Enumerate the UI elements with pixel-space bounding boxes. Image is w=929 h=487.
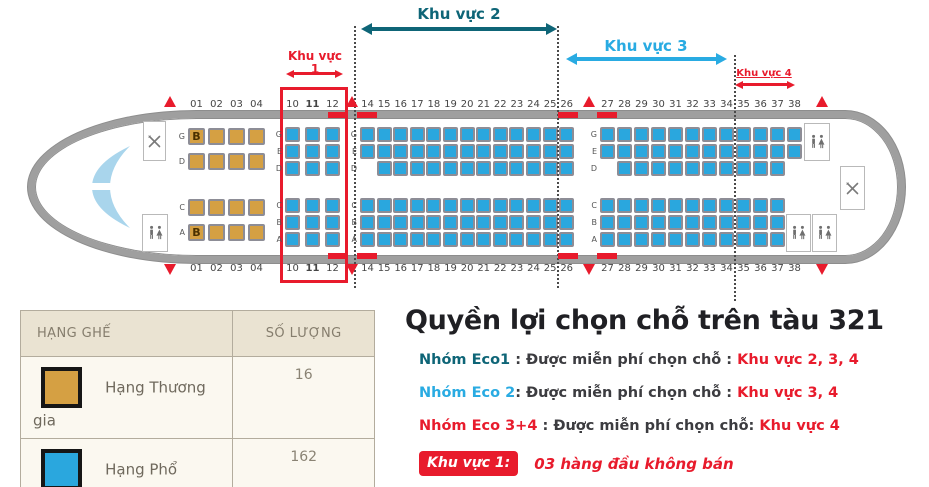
exit-door-marker — [328, 253, 348, 259]
col-number-10-top: 10 — [283, 99, 303, 110]
seat-15G[interactable] — [377, 127, 392, 142]
seat-21A[interactable] — [476, 232, 491, 247]
row-letter-econ-front-D: D — [272, 164, 282, 173]
seat-19D[interactable] — [443, 161, 458, 176]
seat-33G[interactable] — [702, 127, 717, 142]
seat-32B[interactable] — [685, 215, 700, 230]
legend-row-business: Hạng Thương gia 16 — [21, 357, 375, 439]
col-number-02-top: 02 — [207, 99, 227, 110]
seat-10G[interactable] — [285, 127, 300, 142]
galley-icon — [840, 166, 865, 210]
seat-20C[interactable] — [460, 198, 475, 213]
seat-12A[interactable] — [325, 232, 340, 247]
seat-12B[interactable] — [325, 215, 340, 230]
seat-35E[interactable] — [736, 144, 751, 159]
seat-36B[interactable] — [753, 215, 768, 230]
col-number-38-bottom: 38 — [785, 263, 805, 274]
row-letter-econ-front-A: A — [272, 235, 282, 244]
seat-22D[interactable] — [493, 161, 508, 176]
seat-15B[interactable] — [377, 215, 392, 230]
seat-29C[interactable] — [634, 198, 649, 213]
seat-30G[interactable] — [651, 127, 666, 142]
seat-29E[interactable] — [634, 144, 649, 159]
seat-19B[interactable] — [443, 215, 458, 230]
seat-37E[interactable] — [770, 144, 785, 159]
seat-18C[interactable] — [426, 198, 441, 213]
seat-10B[interactable] — [285, 215, 300, 230]
seat-34A[interactable] — [719, 232, 734, 247]
seat-11A[interactable] — [305, 232, 320, 247]
seat-19C[interactable] — [443, 198, 458, 213]
seat-32C[interactable] — [685, 198, 700, 213]
seat-03A[interactable] — [228, 224, 245, 241]
seat-16G[interactable] — [393, 127, 408, 142]
seat-27A[interactable] — [600, 232, 615, 247]
seat-10D[interactable] — [285, 161, 300, 176]
seat-17G[interactable] — [410, 127, 425, 142]
seat-20D[interactable] — [460, 161, 475, 176]
lavatory-icon — [812, 214, 837, 252]
row-letter-econ-front-C: C — [272, 201, 282, 210]
seat-25G[interactable] — [543, 127, 558, 142]
benefit-line-eco1: Nhóm Eco1 : Được miễn phí chọn chỗ : Khu… — [419, 352, 927, 368]
seat-26A[interactable] — [559, 232, 574, 247]
seat-selection-infographic: Khu vực 2 Khu vực 3 Khu vực 4 Khu vực 1 … — [0, 0, 929, 487]
seat-28C[interactable] — [617, 198, 632, 213]
seat-23A[interactable] — [509, 232, 524, 247]
seat-17C[interactable] — [410, 198, 425, 213]
economy-seat-count: 162 — [233, 438, 375, 487]
seat-28E[interactable] — [617, 144, 632, 159]
galley-icon — [143, 121, 166, 161]
seat-01G[interactable]: B — [188, 128, 205, 145]
seat-29B[interactable] — [634, 215, 649, 230]
seat-24D[interactable] — [526, 161, 541, 176]
seat-21C[interactable] — [476, 198, 491, 213]
seat-33C[interactable] — [702, 198, 717, 213]
legend-header-class: HẠNG GHẾ — [21, 311, 233, 357]
seat-11D[interactable] — [305, 161, 320, 176]
seat-26C[interactable] — [559, 198, 574, 213]
exit-arrow-icon — [164, 96, 176, 107]
seat-36A[interactable] — [753, 232, 768, 247]
row-letter-business-D: D — [175, 157, 185, 166]
seat-36D[interactable] — [753, 161, 768, 176]
seat-30C[interactable] — [651, 198, 666, 213]
exit-arrow-icon — [164, 264, 176, 275]
seat-27C[interactable] — [600, 198, 615, 213]
seat-03C[interactable] — [228, 199, 245, 216]
seat-37G[interactable] — [770, 127, 785, 142]
seat-33A[interactable] — [702, 232, 717, 247]
seat-22B[interactable] — [493, 215, 508, 230]
col-number-02-bottom: 02 — [207, 263, 227, 274]
seat-01A[interactable]: B — [188, 224, 205, 241]
legend-table: HẠNG GHẾ SỐ LƯỢNG Hạng Thương gia 16 Hạn… — [20, 310, 375, 487]
zone4-range-arrow — [743, 83, 787, 86]
seat-26G[interactable] — [559, 127, 574, 142]
seat-34C[interactable] — [719, 198, 734, 213]
row-letter-business-A: A — [175, 228, 185, 237]
seat-22E[interactable] — [493, 144, 508, 159]
seat-17D[interactable] — [410, 161, 425, 176]
seat-02A[interactable] — [208, 224, 225, 241]
seat-24C[interactable] — [526, 198, 541, 213]
business-seat-swatch — [41, 367, 82, 408]
row-letter-econ-rear-D: D — [587, 164, 597, 173]
seat-25A[interactable] — [543, 232, 558, 247]
seat-03D[interactable] — [228, 153, 245, 170]
seat-28A[interactable] — [617, 232, 632, 247]
seat-21E[interactable] — [476, 144, 491, 159]
zone1-note-line: Khu vực 1: 03 hàng đầu không bán — [419, 451, 927, 476]
seat-30E[interactable] — [651, 144, 666, 159]
seat-14E[interactable] — [360, 144, 375, 159]
seat-24G[interactable] — [526, 127, 541, 142]
seat-16C[interactable] — [393, 198, 408, 213]
seat-36G[interactable] — [753, 127, 768, 142]
col-number-10-bottom: 10 — [283, 263, 303, 274]
seat-01D[interactable] — [188, 153, 205, 170]
seat-23D[interactable] — [509, 161, 524, 176]
seat-31C[interactable] — [668, 198, 683, 213]
seat-18G[interactable] — [426, 127, 441, 142]
seat-28D[interactable] — [617, 161, 632, 176]
benefit-line-eco34: Nhóm Eco 3+4 : Được miễn phí chọn chỗ: K… — [419, 418, 927, 434]
business-seat-count: 16 — [233, 357, 375, 439]
seat-04D[interactable] — [248, 153, 265, 170]
seat-20B[interactable] — [460, 215, 475, 230]
seat-35A[interactable] — [736, 232, 751, 247]
seat-12D[interactable] — [325, 161, 340, 176]
seat-22C[interactable] — [493, 198, 508, 213]
exit-door-marker — [597, 112, 617, 118]
seat-23E[interactable] — [509, 144, 524, 159]
seat-15A[interactable] — [377, 232, 392, 247]
seat-23C[interactable] — [509, 198, 524, 213]
seat-33E[interactable] — [702, 144, 717, 159]
seat-36E[interactable] — [753, 144, 768, 159]
seat-22A[interactable] — [493, 232, 508, 247]
seat-25C[interactable] — [543, 198, 558, 213]
seat-01C[interactable] — [188, 199, 205, 216]
seat-32E[interactable] — [685, 144, 700, 159]
lavatory-icon — [786, 214, 811, 252]
col-number-04-top: 04 — [247, 99, 267, 110]
seat-32D[interactable] — [685, 161, 700, 176]
zone1-badge: Khu vực 1: — [419, 451, 518, 476]
seat-20G[interactable] — [460, 127, 475, 142]
seat-11C[interactable] — [305, 198, 320, 213]
seat-14C[interactable] — [360, 198, 375, 213]
seat-04G[interactable] — [248, 128, 265, 145]
zone-boundary-line-1 — [354, 26, 356, 288]
seat-20E[interactable] — [460, 144, 475, 159]
exit-door-marker — [558, 253, 578, 259]
seat-33B[interactable] — [702, 215, 717, 230]
seat-38E[interactable] — [787, 144, 802, 159]
seat-31A[interactable] — [668, 232, 683, 247]
seat-12C[interactable] — [325, 198, 340, 213]
seat-12G[interactable] — [325, 127, 340, 142]
zone-boundary-line-3 — [734, 55, 736, 301]
benefit-text: : Được miễn phí chọn chỗ : — [510, 352, 737, 368]
seat-30B[interactable] — [651, 215, 666, 230]
seat-29A[interactable] — [634, 232, 649, 247]
seat-31E[interactable] — [668, 144, 683, 159]
benefit-text: : Được miễn phí chọn chỗ: — [537, 418, 759, 434]
seat-02G[interactable] — [208, 128, 225, 145]
exit-door-marker — [558, 112, 578, 118]
seat-34D[interactable] — [719, 161, 734, 176]
seat-30A[interactable] — [651, 232, 666, 247]
seat-35G[interactable] — [736, 127, 751, 142]
seat-18A[interactable] — [426, 232, 441, 247]
benefit-text: : Được miễn phí chọn chỗ : — [515, 385, 737, 401]
seat-19A[interactable] — [443, 232, 458, 247]
seat-19E[interactable] — [443, 144, 458, 159]
cockpit-windshield-icon — [84, 146, 136, 228]
col-number-11-top: 11 — [303, 99, 323, 110]
seat-27G[interactable] — [600, 127, 615, 142]
col-number-12-top: 12 — [323, 99, 343, 110]
col-number-26-bottom: 26 — [557, 263, 577, 274]
row-letter-business-G: G — [175, 132, 185, 141]
zone3-range-arrow — [577, 57, 716, 61]
seat-map: Khu vực 2 Khu vực 3 Khu vực 4 Khu vực 1 … — [0, 0, 929, 302]
col-number-01-top: 01 — [187, 99, 207, 110]
row-letter-econ-front-G: G — [272, 130, 282, 139]
seat-02D[interactable] — [208, 153, 225, 170]
seat-21B[interactable] — [476, 215, 491, 230]
seat-18D[interactable] — [426, 161, 441, 176]
seat-17E[interactable] — [410, 144, 425, 159]
zone2-range-arrow — [372, 27, 546, 31]
seat-35B[interactable] — [736, 215, 751, 230]
seat-14A[interactable] — [360, 232, 375, 247]
zone-boundary-line-2 — [557, 26, 559, 288]
col-number-12-bottom: 12 — [323, 263, 343, 274]
seat-23B[interactable] — [509, 215, 524, 230]
seat-16D[interactable] — [393, 161, 408, 176]
seat-22G[interactable] — [493, 127, 508, 142]
benefit-line-eco2: Nhóm Eco 2: Được miễn phí chọn chỗ : Khu… — [419, 385, 927, 401]
seat-26D[interactable] — [559, 161, 574, 176]
legend-row-economy: Hạng Phổ thông 162 — [21, 438, 375, 487]
seat-14G[interactable] — [360, 127, 375, 142]
seat-26E[interactable] — [559, 144, 574, 159]
seat-36C[interactable] — [753, 198, 768, 213]
seat-15E[interactable] — [377, 144, 392, 159]
seat-28G[interactable] — [617, 127, 632, 142]
col-number-01-bottom: 01 — [187, 263, 207, 274]
exit-door-marker — [357, 253, 377, 259]
row-letter-econ-front-B: B — [272, 218, 282, 227]
seat-10C[interactable] — [285, 198, 300, 213]
seat-11E[interactable] — [305, 144, 320, 159]
exit-arrow-icon — [816, 96, 828, 107]
seat-37D[interactable] — [770, 161, 785, 176]
col-number-38-top: 38 — [785, 99, 805, 110]
row-letter-business-C: C — [175, 203, 185, 212]
seat-27E[interactable] — [600, 144, 615, 159]
exit-arrow-icon — [583, 264, 595, 275]
row-letter-econ-rear-C: C — [587, 201, 597, 210]
seat-29G[interactable] — [634, 127, 649, 142]
col-number-03-bottom: 03 — [227, 263, 247, 274]
lavatory-icon — [804, 123, 830, 161]
seat-31G[interactable] — [668, 127, 683, 142]
benefit-zones-eco2: Khu vực 3, 4 — [737, 385, 838, 401]
seat-18E[interactable] — [426, 144, 441, 159]
seat-25E[interactable] — [543, 144, 558, 159]
seat-21D[interactable] — [476, 161, 491, 176]
seat-15D[interactable] — [377, 161, 392, 176]
lavatory-icon — [142, 214, 168, 252]
col-number-26-top: 26 — [557, 99, 577, 110]
seat-02C[interactable] — [208, 199, 225, 216]
seat-34B[interactable] — [719, 215, 734, 230]
benefits-title: Quyền lợi chọn chỗ trên tàu 321 — [405, 305, 927, 336]
benefit-group-eco1: Nhóm Eco1 — [419, 352, 510, 368]
benefit-group-eco2: Nhóm Eco 2 — [419, 385, 515, 401]
exit-door-marker — [328, 112, 348, 118]
exit-arrow-icon — [346, 264, 358, 275]
zone3-label: Khu vực 3 — [564, 38, 728, 55]
seat-37C[interactable] — [770, 198, 785, 213]
seat-31B[interactable] — [668, 215, 683, 230]
benefits-panel: Quyền lợi chọn chỗ trên tàu 321 Nhóm Eco… — [405, 305, 927, 476]
row-letter-econ-rear-E: E — [587, 147, 597, 156]
col-number-03-top: 03 — [227, 99, 247, 110]
seat-11G[interactable] — [305, 127, 320, 142]
seat-35D[interactable] — [736, 161, 751, 176]
seat-26B[interactable] — [559, 215, 574, 230]
seat-03G[interactable] — [228, 128, 245, 145]
seat-32A[interactable] — [685, 232, 700, 247]
row-letter-econ-front-E: E — [272, 147, 282, 156]
row-letter-econ-rear-A: A — [587, 235, 597, 244]
row-letter-econ-rear-B: B — [587, 218, 597, 227]
seat-28B[interactable] — [617, 215, 632, 230]
exit-door-marker — [357, 112, 377, 118]
seat-29D[interactable] — [634, 161, 649, 176]
seat-32G[interactable] — [685, 127, 700, 142]
seat-14B[interactable] — [360, 215, 375, 230]
benefit-zones-eco34: Khu vực 4 — [759, 418, 839, 434]
exit-door-marker — [597, 253, 617, 259]
seat-04A[interactable] — [248, 224, 265, 241]
legend-header-count: SỐ LƯỢNG — [233, 311, 375, 357]
zone1-range-arrow — [294, 72, 335, 75]
col-number-04-bottom: 04 — [247, 263, 267, 274]
seat-31D[interactable] — [668, 161, 683, 176]
seat-24B[interactable] — [526, 215, 541, 230]
zone2-label: Khu vực 2 — [361, 6, 557, 23]
seat-35C[interactable] — [736, 198, 751, 213]
seat-20A[interactable] — [460, 232, 475, 247]
seat-17A[interactable] — [410, 232, 425, 247]
seat-25D[interactable] — [543, 161, 558, 176]
benefit-group-eco34: Nhóm Eco 3+4 — [419, 418, 537, 434]
seat-27B[interactable] — [600, 215, 615, 230]
zone1-note-text: 03 hàng đầu không bán — [534, 455, 733, 473]
seat-16B[interactable] — [393, 215, 408, 230]
economy-seat-swatch — [41, 449, 82, 487]
seat-15C[interactable] — [377, 198, 392, 213]
seat-16A[interactable] — [393, 232, 408, 247]
col-number-11-bottom: 11 — [303, 263, 323, 274]
seat-38G[interactable] — [787, 127, 802, 142]
zone4-label: Khu vực 4 — [731, 68, 797, 79]
exit-arrow-icon — [346, 96, 358, 107]
seat-10E[interactable] — [285, 144, 300, 159]
row-letter-econ-rear-G: G — [587, 130, 597, 139]
seat-34G[interactable] — [719, 127, 734, 142]
seat-11B[interactable] — [305, 215, 320, 230]
seat-24A[interactable] — [526, 232, 541, 247]
seat-17B[interactable] — [410, 215, 425, 230]
seat-21G[interactable] — [476, 127, 491, 142]
seat-37B[interactable] — [770, 215, 785, 230]
seat-37A[interactable] — [770, 232, 785, 247]
seat-33D[interactable] — [702, 161, 717, 176]
exit-arrow-icon — [583, 96, 595, 107]
seat-10A[interactable] — [285, 232, 300, 247]
seat-30D[interactable] — [651, 161, 666, 176]
seat-34E[interactable] — [719, 144, 734, 159]
seat-24E[interactable] — [526, 144, 541, 159]
seat-25B[interactable] — [543, 215, 558, 230]
exit-arrow-icon — [816, 264, 828, 275]
seat-12E[interactable] — [325, 144, 340, 159]
seat-16E[interactable] — [393, 144, 408, 159]
seat-18B[interactable] — [426, 215, 441, 230]
seat-04C[interactable] — [248, 199, 265, 216]
seat-23G[interactable] — [509, 127, 524, 142]
benefit-zones-eco1: Khu vực 2, 3, 4 — [737, 352, 859, 368]
seat-19G[interactable] — [443, 127, 458, 142]
